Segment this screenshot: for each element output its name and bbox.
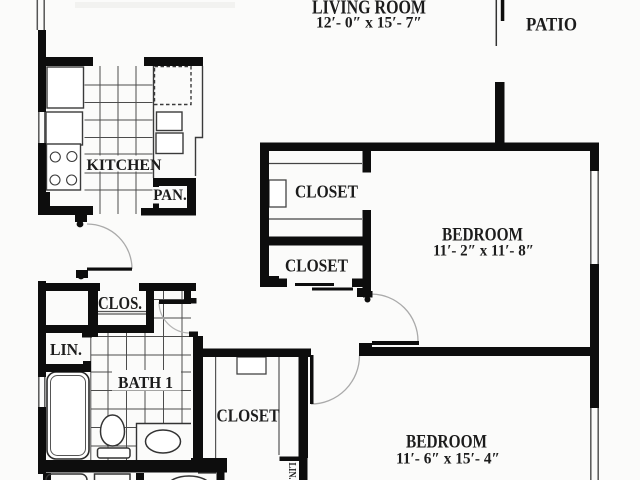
- svg-text:CLOSET: CLOSET: [295, 181, 358, 201]
- svg-text:CLOS.: CLOS.: [98, 293, 142, 313]
- svg-text:PAN.: PAN.: [153, 187, 187, 204]
- svg-text:LIN.: LIN.: [50, 340, 82, 359]
- svg-text:11′- 2″ x 11′- 8″: 11′- 2″ x 11′- 8″: [433, 243, 534, 260]
- svg-text:CLOSET: CLOSET: [285, 256, 348, 276]
- svg-text:LIN.: LIN.: [286, 463, 297, 480]
- svg-text:PATIO: PATIO: [526, 16, 577, 36]
- svg-text:CLOSET: CLOSET: [217, 406, 280, 426]
- svg-text:BATH 1: BATH 1: [118, 373, 173, 392]
- svg-text:11′- 6″ x 15′- 4″: 11′- 6″ x 15′- 4″: [396, 451, 500, 468]
- svg-text:12′- 0″ x 15′- 7″: 12′- 0″ x 15′- 7″: [316, 15, 422, 32]
- svg-text:KITCHEN: KITCHEN: [87, 157, 162, 174]
- svg-text:BEDROOM: BEDROOM: [406, 432, 487, 453]
